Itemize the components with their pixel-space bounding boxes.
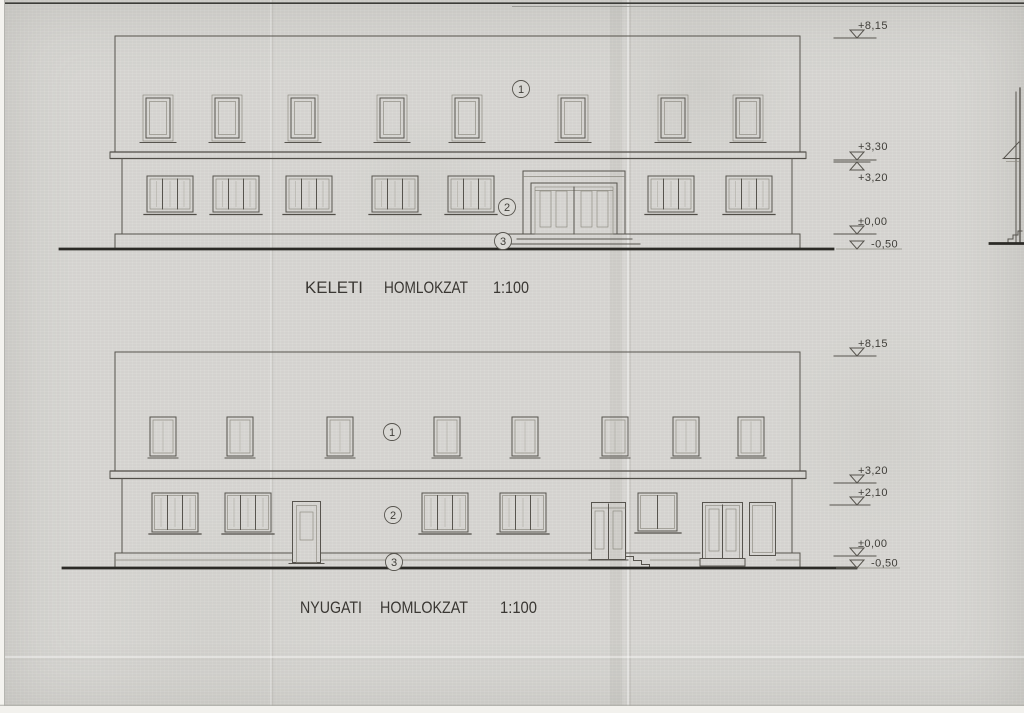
drawing-scale: 1:100 (493, 278, 529, 297)
level-marker-roof: +8,15 (834, 338, 888, 356)
level-marker-terrain: -0,50 (836, 558, 900, 570)
callout-1: 1 (513, 81, 530, 98)
window (283, 176, 335, 215)
window (671, 417, 701, 458)
window (149, 493, 201, 534)
level-value: +8,15 (858, 338, 888, 350)
callout-number: 1 (389, 427, 395, 439)
window (419, 493, 471, 534)
window (497, 493, 549, 534)
window (635, 493, 681, 533)
double-door (700, 503, 745, 567)
level-value: +2,10 (858, 487, 888, 499)
level-marker-cornice-lower: +3,20 (834, 162, 888, 184)
window (730, 95, 766, 143)
scanned-drawing-sheet: 1 2 3 +8,15 +3,30 +3,20 ±0,00 (0, 0, 1024, 713)
window (449, 95, 485, 143)
drawing-scale: 1:100 (500, 598, 537, 617)
level-marker-cornice-upper: +3,30 (834, 141, 888, 160)
drawing-title: KELETI HOMLOKZAT 1:100 (305, 278, 529, 297)
callout-2: 2 (499, 199, 516, 216)
window (645, 176, 697, 215)
callout-3: 3 (495, 233, 512, 250)
callout-3: 3 (386, 554, 403, 571)
callout-number: 3 (500, 236, 506, 248)
callout-number: 2 (504, 202, 510, 214)
drawing-title: NYUGATI HOMLOKZAT 1:100 (300, 598, 537, 617)
keleti-elevation: 1 2 3 +8,15 +3,30 +3,20 ±0,00 (60, 20, 902, 297)
double-door (589, 503, 628, 561)
callout-2: 2 (385, 507, 402, 524)
level-value: +3,20 (858, 465, 888, 477)
ground-floor-windows (144, 176, 775, 215)
window (325, 417, 355, 458)
callout-number: 2 (390, 510, 396, 522)
facade-name: KELETI (305, 278, 363, 297)
window (655, 95, 691, 143)
window (148, 417, 178, 458)
level-marker-floor: ±0,00 (834, 216, 887, 234)
window (222, 493, 274, 534)
facade-outline (110, 352, 806, 568)
level-value: +8,15 (858, 20, 888, 32)
window (723, 176, 775, 215)
left-scan-edge (0, 0, 4, 713)
level-marker-terrain: -0,50 (836, 239, 902, 251)
bottom-scan-edge (0, 706, 1024, 713)
callout-number: 3 (391, 557, 397, 569)
ground-floor-doors (289, 502, 776, 569)
drawing-canvas: 1 2 3 +8,15 +3,30 +3,20 ±0,00 (0, 0, 1024, 713)
window (445, 176, 497, 215)
window (374, 95, 410, 143)
facade-type: HOMLOKZAT (380, 598, 468, 617)
window (225, 417, 255, 458)
nyugati-elevation: 1 2 3 +8,15 +3,20 +2,10 ±0,00 (63, 338, 900, 617)
window (209, 95, 245, 143)
door-stoop (700, 559, 745, 567)
callout-number: 1 (518, 84, 524, 96)
level-value: +3,30 (858, 141, 888, 153)
window (285, 95, 321, 143)
upper-floor-windows (140, 95, 766, 143)
level-marker-door-head: +2,10 (830, 487, 888, 505)
level-marker-floor: ±0,00 (834, 538, 887, 556)
window (369, 176, 421, 215)
level-value: ±0,00 (858, 216, 887, 228)
level-marker-roof: +8,15 (834, 20, 888, 38)
window (210, 176, 262, 215)
level-value: -0,50 (871, 239, 898, 251)
window (140, 95, 176, 143)
level-value: +3,20 (858, 172, 888, 184)
upper-floor-windows (148, 417, 766, 458)
window (144, 176, 196, 215)
callout-1: 1 (384, 424, 401, 441)
level-value: ±0,00 (858, 538, 887, 550)
door-steps (626, 557, 650, 569)
level-marker-cornice: +3,20 (834, 465, 888, 483)
adjacent-drawing-fragment (990, 88, 1024, 244)
single-door (289, 502, 324, 564)
level-value: -0,50 (871, 558, 898, 570)
ground-floor-windows (149, 493, 681, 534)
window (510, 417, 540, 458)
facade-name: NYUGATI (300, 598, 362, 617)
window (555, 95, 591, 143)
side-door (750, 503, 776, 556)
window (432, 417, 462, 458)
window (736, 417, 766, 458)
facade-type: HOMLOKZAT (384, 278, 468, 297)
